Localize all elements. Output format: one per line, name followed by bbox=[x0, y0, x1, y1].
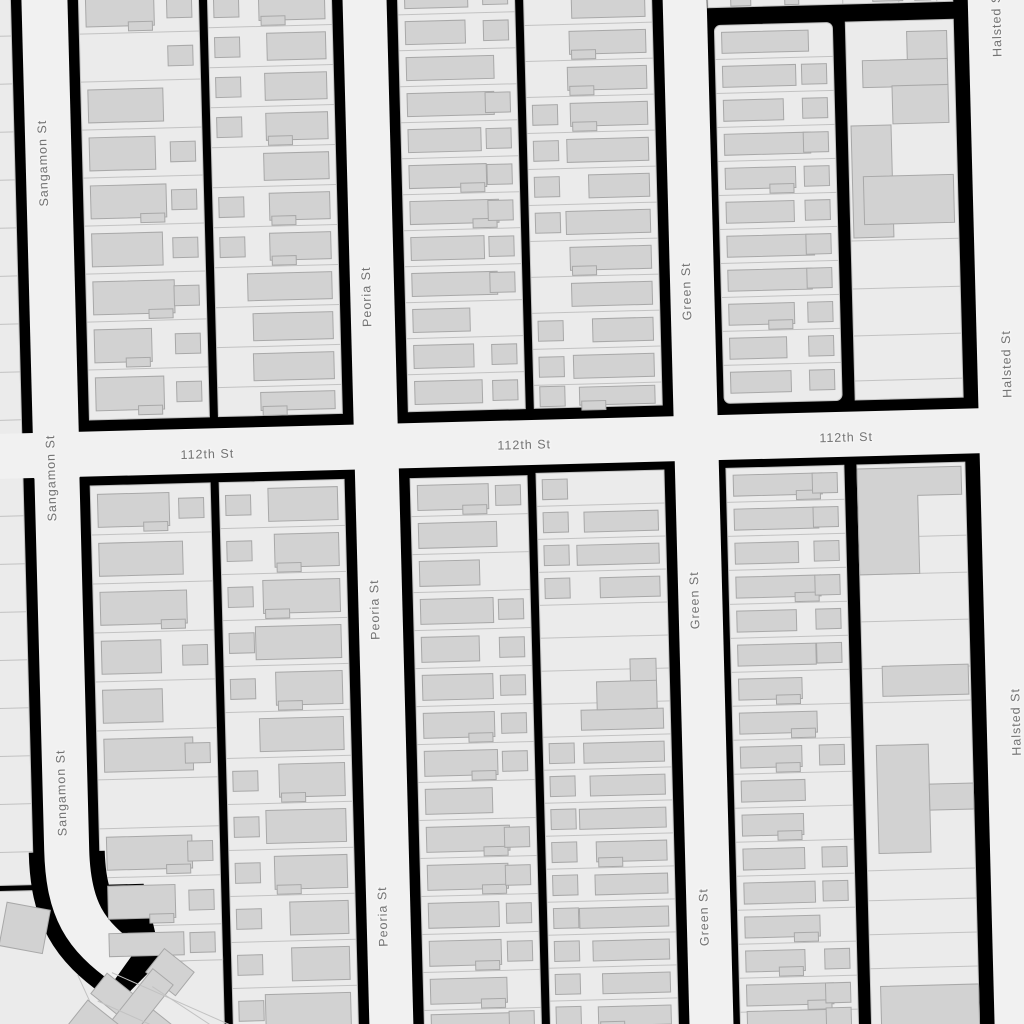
garage-footprint bbox=[535, 213, 561, 234]
building-footprint bbox=[413, 308, 471, 332]
building-footprint bbox=[263, 406, 287, 416]
garage-footprint bbox=[552, 842, 578, 863]
building-footprint bbox=[724, 132, 811, 155]
building-footprint bbox=[103, 689, 164, 724]
building-footprint bbox=[722, 64, 796, 87]
garage-footprint bbox=[509, 1011, 535, 1024]
street-label: Green St bbox=[696, 888, 712, 946]
garage-footprint bbox=[549, 743, 575, 764]
building-footprint bbox=[730, 0, 750, 6]
building-footprint bbox=[584, 741, 665, 763]
garage-footprint bbox=[171, 189, 197, 210]
garage-footprint bbox=[825, 948, 851, 969]
building-footprint bbox=[277, 563, 301, 573]
garage-footprint bbox=[482, 0, 508, 5]
building-footprint bbox=[770, 184, 794, 194]
building-footprint bbox=[737, 610, 797, 633]
building-footprint bbox=[411, 236, 485, 261]
building-footprint bbox=[406, 55, 494, 80]
map-viewport[interactable]: Sangamon StSangamon StSangamon StPeoria … bbox=[0, 0, 1024, 1024]
garage-footprint bbox=[533, 141, 559, 162]
building-footprint bbox=[88, 88, 164, 123]
building-footprint bbox=[255, 625, 341, 660]
garage-footprint bbox=[808, 302, 834, 323]
garage-footprint bbox=[220, 237, 246, 258]
garage-footprint bbox=[173, 237, 199, 258]
garage-footprint bbox=[225, 495, 251, 516]
garage-footprint bbox=[188, 840, 214, 861]
building-footprint bbox=[415, 380, 483, 405]
garage-footprint bbox=[802, 98, 828, 119]
garage-footprint bbox=[553, 908, 579, 929]
building-footprint bbox=[776, 763, 800, 773]
building-footprint bbox=[882, 664, 969, 696]
garage-footprint bbox=[235, 863, 261, 884]
garage-footprint bbox=[823, 880, 849, 901]
building-footprint bbox=[267, 32, 326, 61]
garage-footprint bbox=[553, 875, 579, 896]
building-footprint bbox=[419, 560, 480, 587]
garage-footprint bbox=[487, 164, 513, 185]
building-footprint bbox=[738, 643, 817, 666]
building-footprint bbox=[726, 201, 795, 224]
garage-footprint bbox=[813, 506, 839, 527]
building-footprint bbox=[266, 808, 347, 843]
building-footprint bbox=[476, 960, 500, 970]
garage-footprint bbox=[534, 177, 560, 198]
building-footprint bbox=[571, 50, 595, 60]
building-footprint bbox=[259, 716, 344, 751]
garage-footprint bbox=[815, 574, 841, 595]
street-label: Peoria St bbox=[367, 579, 383, 640]
building-footprint bbox=[572, 266, 596, 276]
garage-footprint bbox=[217, 117, 243, 138]
building-footprint bbox=[747, 1009, 831, 1024]
street-label: Peoria St bbox=[359, 266, 375, 327]
building-footprint bbox=[481, 998, 505, 1008]
building-footprint bbox=[582, 401, 606, 411]
garage-footprint bbox=[801, 64, 827, 85]
garage-footprint bbox=[532, 105, 558, 126]
building-footprint bbox=[723, 99, 783, 122]
building-footprint bbox=[261, 16, 285, 26]
building-footprint bbox=[247, 272, 332, 301]
building-footprint bbox=[599, 857, 623, 867]
building-footprint bbox=[425, 788, 493, 815]
building-footprint bbox=[109, 932, 184, 957]
building-footprint bbox=[167, 864, 191, 874]
garage-footprint bbox=[213, 0, 239, 18]
building-footprint bbox=[567, 137, 649, 162]
garage-footprint bbox=[556, 1006, 582, 1024]
building-footprint bbox=[412, 271, 498, 296]
building-footprint bbox=[862, 58, 948, 87]
building-footprint bbox=[784, 0, 799, 5]
garage-footprint bbox=[822, 846, 848, 867]
building-footprint bbox=[101, 640, 161, 675]
building-footprint bbox=[892, 84, 949, 123]
building-footprint bbox=[290, 900, 349, 935]
street-label: Peoria St bbox=[375, 886, 391, 947]
building-footprint bbox=[253, 352, 334, 381]
building-footprint bbox=[414, 344, 475, 369]
garage-footprint bbox=[819, 744, 845, 765]
building-footprint bbox=[590, 774, 665, 796]
building-footprint bbox=[418, 521, 497, 548]
building-footprint bbox=[727, 234, 815, 257]
garage-footprint bbox=[505, 865, 531, 886]
building-footprint bbox=[472, 771, 496, 781]
street-label: Green St bbox=[687, 571, 703, 629]
building-footprint bbox=[421, 636, 479, 663]
garage-footprint bbox=[555, 974, 581, 995]
garage-footprint bbox=[490, 272, 516, 293]
garage-footprint bbox=[804, 166, 830, 187]
building-footprint bbox=[791, 728, 815, 738]
garage-footprint bbox=[504, 827, 530, 848]
building-footprint bbox=[422, 674, 493, 701]
garage-footprint bbox=[507, 941, 533, 962]
building-footprint bbox=[128, 21, 152, 31]
building-footprint bbox=[150, 913, 174, 923]
building-footprint bbox=[577, 543, 660, 565]
garage-footprint bbox=[808, 336, 834, 357]
garage-footprint bbox=[229, 633, 255, 654]
building-footprint bbox=[602, 972, 670, 994]
garage-footprint bbox=[501, 713, 527, 734]
building-footprint bbox=[769, 320, 793, 330]
building-footprint bbox=[263, 579, 341, 614]
garage-footprint bbox=[803, 132, 829, 153]
building-footprint bbox=[735, 542, 799, 565]
garage-footprint bbox=[239, 1001, 265, 1022]
building-footprint bbox=[876, 744, 931, 853]
garage-footprint bbox=[540, 386, 566, 407]
building-footprint bbox=[281, 793, 305, 803]
garage-footprint bbox=[170, 141, 196, 162]
garage-footprint bbox=[233, 771, 259, 792]
street-label: 112th St bbox=[819, 430, 873, 445]
garage-footprint bbox=[550, 776, 576, 797]
garage-footprint bbox=[175, 333, 201, 354]
street-label: 112th St bbox=[497, 437, 551, 452]
building-footprint bbox=[264, 152, 330, 181]
building-footprint bbox=[743, 847, 805, 870]
building-footprint bbox=[872, 0, 902, 1]
map-canvas[interactable]: Sangamon StSangamon StSangamon StPeoria … bbox=[0, 0, 1024, 1024]
building-footprint bbox=[292, 946, 351, 981]
garage-footprint bbox=[488, 200, 514, 221]
building-footprint bbox=[428, 901, 499, 928]
building-footprint bbox=[92, 232, 164, 267]
garage-footprint bbox=[807, 268, 833, 289]
building-footprint bbox=[571, 0, 645, 18]
building-footprint bbox=[161, 619, 185, 629]
building-footprint bbox=[584, 510, 659, 532]
building-footprint bbox=[573, 122, 597, 132]
building-footprint bbox=[469, 733, 493, 743]
building-footprint bbox=[722, 30, 809, 53]
building-footprint bbox=[274, 533, 339, 568]
building-footprint bbox=[404, 0, 468, 9]
garage-footprint bbox=[812, 472, 838, 493]
street-label: Halsted St bbox=[1008, 688, 1024, 756]
building-footprint bbox=[779, 967, 803, 977]
garage-footprint bbox=[551, 809, 577, 830]
garage-footprint bbox=[166, 0, 192, 18]
building-footprint bbox=[881, 984, 980, 1024]
garage-footprint bbox=[493, 380, 519, 401]
building-footprint bbox=[461, 183, 485, 193]
building-footprint bbox=[579, 906, 668, 928]
building-footprint bbox=[89, 136, 156, 171]
garage-footprint bbox=[219, 197, 245, 218]
garage-footprint bbox=[499, 637, 525, 658]
street-label: Halsted St bbox=[989, 0, 1005, 57]
building-footprint bbox=[126, 357, 150, 367]
street-label: Sangamon St bbox=[43, 435, 59, 522]
garage-footprint bbox=[189, 889, 215, 910]
building-footprint bbox=[268, 136, 292, 146]
building-footprint bbox=[431, 1012, 520, 1024]
garage-footprint bbox=[190, 932, 216, 953]
building-footprint bbox=[571, 281, 652, 306]
building-footprint bbox=[0, 902, 50, 953]
map-rotated-layer: Sangamon StSangamon StSangamon StPeoria … bbox=[0, 0, 1024, 1024]
building-footprint bbox=[482, 884, 506, 894]
building-footprint bbox=[579, 807, 666, 829]
building-footprint bbox=[595, 873, 668, 895]
garage-footprint bbox=[228, 587, 254, 608]
garage-footprint bbox=[179, 498, 205, 519]
building-footprint bbox=[588, 173, 649, 198]
building-footprint bbox=[463, 505, 487, 515]
garage-footprint bbox=[806, 234, 832, 255]
building-footprint bbox=[272, 256, 296, 266]
building-footprint bbox=[730, 337, 788, 359]
building-footprint bbox=[863, 174, 954, 224]
building-footprint bbox=[592, 317, 653, 342]
building-footprint bbox=[274, 854, 347, 889]
building-footprint bbox=[776, 695, 800, 705]
building-footprint bbox=[139, 405, 163, 415]
building-footprint bbox=[104, 737, 194, 772]
garage-footprint bbox=[817, 642, 843, 663]
building-footprint bbox=[744, 881, 816, 904]
building-footprint bbox=[277, 885, 301, 895]
building-footprint bbox=[265, 992, 351, 1024]
building-footprint bbox=[728, 268, 813, 291]
garage-footprint bbox=[234, 817, 260, 838]
garage-footprint bbox=[230, 679, 256, 700]
street-label: Halsted St bbox=[999, 330, 1015, 398]
building-footprint bbox=[407, 91, 494, 116]
building-footprint bbox=[929, 783, 974, 810]
building-footprint bbox=[99, 541, 184, 576]
building-footprint bbox=[730, 371, 791, 394]
garage-footprint bbox=[554, 941, 580, 962]
garage-footprint bbox=[506, 903, 532, 924]
building-footprint bbox=[272, 216, 296, 226]
garage-footprint bbox=[236, 909, 262, 930]
garage-footprint bbox=[214, 37, 240, 58]
garage-footprint bbox=[489, 236, 515, 257]
building-footprint bbox=[141, 213, 165, 223]
garage-footprint bbox=[825, 982, 851, 1003]
street-label: Sangamon St bbox=[35, 120, 51, 207]
building-footprint bbox=[581, 708, 664, 730]
building-footprint bbox=[268, 487, 338, 522]
building-footprint bbox=[265, 72, 328, 101]
garage-footprint bbox=[826, 1007, 852, 1024]
garage-footprint bbox=[544, 545, 570, 566]
building-footprint bbox=[144, 522, 168, 532]
garage-footprint bbox=[182, 645, 208, 666]
garage-footprint bbox=[814, 540, 840, 561]
street-label: Sangamon St bbox=[53, 749, 69, 836]
garage-footprint bbox=[498, 599, 524, 620]
garage-footprint bbox=[216, 77, 242, 98]
building-footprint bbox=[149, 309, 173, 319]
garage-footprint bbox=[176, 381, 202, 402]
building-footprint bbox=[570, 86, 594, 96]
garage-footprint bbox=[543, 512, 569, 533]
garage-footprint bbox=[545, 578, 571, 599]
building-footprint bbox=[778, 831, 802, 841]
building-footprint bbox=[566, 209, 651, 234]
garage-footprint bbox=[485, 92, 511, 113]
building-footprint bbox=[253, 312, 333, 341]
building-footprint bbox=[266, 609, 290, 619]
building-footprint bbox=[734, 507, 819, 530]
building-footprint bbox=[278, 701, 302, 711]
building-footprint bbox=[593, 939, 670, 961]
garage-footprint bbox=[238, 955, 264, 976]
garage-footprint bbox=[227, 541, 253, 562]
street-label: Green St bbox=[679, 262, 695, 320]
garage-footprint bbox=[495, 485, 521, 506]
garage-footprint bbox=[185, 742, 211, 763]
building-footprint bbox=[596, 680, 657, 710]
building-footprint bbox=[600, 576, 660, 598]
garage-footprint bbox=[805, 200, 831, 221]
garage-footprint bbox=[483, 20, 509, 41]
building-footprint bbox=[794, 932, 818, 942]
garage-footprint bbox=[816, 608, 842, 629]
garage-footprint bbox=[809, 370, 835, 391]
building-footprint bbox=[907, 30, 948, 61]
garage-footprint bbox=[486, 128, 512, 149]
building-footprint bbox=[420, 598, 493, 625]
building-footprint bbox=[279, 762, 346, 797]
building-footprint bbox=[405, 20, 465, 45]
street-label: 112th St bbox=[180, 447, 234, 462]
garage-footprint bbox=[168, 45, 194, 66]
building-footprint bbox=[741, 779, 805, 802]
building-footprint bbox=[573, 353, 654, 378]
garage-footprint bbox=[502, 751, 528, 772]
building-footprint bbox=[408, 128, 481, 153]
garage-footprint bbox=[174, 285, 200, 306]
garage-footprint bbox=[492, 344, 518, 365]
building-footprint bbox=[276, 671, 343, 706]
garage-footprint bbox=[538, 321, 564, 342]
garage-footprint bbox=[542, 479, 568, 500]
garage-footprint bbox=[500, 675, 526, 696]
garage-footprint bbox=[539, 357, 565, 378]
